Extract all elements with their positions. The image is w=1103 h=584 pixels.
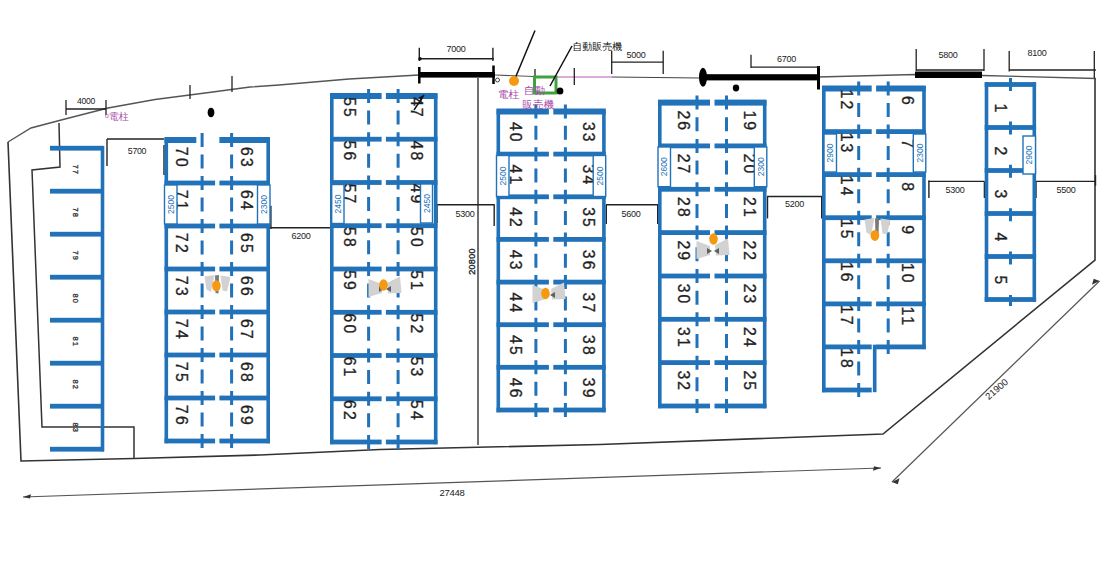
svg-text:10: 10 bbox=[899, 263, 916, 285]
svg-text:17: 17 bbox=[838, 305, 855, 327]
svg-text:23: 23 bbox=[741, 284, 758, 306]
svg-text:5800: 5800 bbox=[939, 50, 958, 60]
svg-text:11: 11 bbox=[899, 307, 916, 328]
svg-text:74: 74 bbox=[173, 319, 190, 341]
svg-text:26: 26 bbox=[675, 110, 692, 132]
svg-text:70: 70 bbox=[173, 147, 190, 169]
svg-text:2: 2 bbox=[992, 147, 1009, 158]
svg-text:5: 5 bbox=[992, 276, 1009, 287]
svg-text:45: 45 bbox=[507, 335, 524, 357]
svg-text:40: 40 bbox=[507, 122, 524, 144]
svg-text:65: 65 bbox=[238, 233, 255, 255]
svg-text:販売機: 販売機 bbox=[522, 98, 555, 110]
svg-text:83: 83 bbox=[71, 423, 80, 433]
svg-text:1: 1 bbox=[992, 104, 1009, 115]
svg-text:53: 53 bbox=[408, 357, 425, 379]
svg-text:4000: 4000 bbox=[77, 96, 95, 106]
svg-text:21: 21 bbox=[741, 197, 758, 219]
svg-text:81: 81 bbox=[71, 337, 80, 347]
svg-text:2300: 2300 bbox=[756, 157, 766, 176]
svg-text:6: 6 bbox=[899, 96, 916, 107]
svg-text:7000: 7000 bbox=[447, 44, 466, 54]
svg-text:2450: 2450 bbox=[333, 194, 343, 213]
svg-text:75: 75 bbox=[173, 362, 190, 384]
svg-text:60: 60 bbox=[341, 313, 358, 335]
svg-text:2900: 2900 bbox=[1024, 145, 1034, 164]
svg-text:31: 31 bbox=[675, 327, 692, 349]
svg-text:58: 58 bbox=[341, 227, 358, 249]
svg-text:62: 62 bbox=[341, 400, 358, 422]
svg-text:76: 76 bbox=[173, 405, 190, 427]
svg-text:5500: 5500 bbox=[1057, 185, 1076, 195]
svg-text:27: 27 bbox=[675, 154, 692, 176]
svg-text:47: 47 bbox=[408, 97, 425, 119]
svg-text:43: 43 bbox=[507, 250, 524, 272]
svg-text:5600: 5600 bbox=[622, 209, 641, 219]
svg-text:63: 63 bbox=[238, 147, 255, 169]
svg-text:77: 77 bbox=[71, 165, 80, 175]
svg-text:15: 15 bbox=[838, 219, 855, 241]
svg-text:68: 68 bbox=[238, 362, 255, 384]
svg-text:5300: 5300 bbox=[456, 209, 475, 219]
svg-text:35: 35 bbox=[580, 207, 597, 229]
svg-text:32: 32 bbox=[675, 370, 692, 392]
svg-text:8100: 8100 bbox=[1028, 48, 1047, 58]
svg-text:73: 73 bbox=[173, 276, 190, 298]
svg-text:4: 4 bbox=[992, 233, 1009, 244]
svg-text:8: 8 bbox=[899, 182, 916, 193]
svg-text:自動販売機: 自動販売機 bbox=[573, 41, 623, 52]
svg-text:37: 37 bbox=[580, 292, 597, 314]
svg-text:5700: 5700 bbox=[128, 146, 147, 156]
svg-text:51: 51 bbox=[408, 270, 425, 292]
svg-text:19: 19 bbox=[741, 110, 758, 132]
svg-text:78: 78 bbox=[71, 208, 80, 218]
svg-text:22: 22 bbox=[741, 240, 758, 262]
svg-text:56: 56 bbox=[341, 140, 358, 162]
svg-text:13: 13 bbox=[838, 133, 855, 155]
svg-text:12: 12 bbox=[838, 90, 855, 112]
svg-text:28: 28 bbox=[675, 197, 692, 219]
svg-text:2300: 2300 bbox=[915, 143, 925, 162]
svg-text:33: 33 bbox=[580, 122, 597, 144]
svg-text:59: 59 bbox=[341, 270, 358, 292]
svg-text:20800: 20800 bbox=[467, 248, 477, 275]
svg-text:27448: 27448 bbox=[440, 487, 465, 498]
svg-text:67: 67 bbox=[238, 319, 255, 341]
svg-text:50: 50 bbox=[408, 227, 425, 249]
svg-text:52: 52 bbox=[408, 313, 425, 335]
svg-text:42: 42 bbox=[507, 207, 524, 229]
svg-text:ᵒ電柱: ᵒ電柱 bbox=[105, 111, 129, 122]
svg-text:2500: 2500 bbox=[166, 195, 176, 214]
svg-text:5000: 5000 bbox=[627, 50, 646, 60]
svg-text:30: 30 bbox=[675, 284, 692, 306]
svg-text:44: 44 bbox=[507, 292, 524, 314]
svg-text:6700: 6700 bbox=[777, 54, 796, 64]
svg-text:48: 48 bbox=[408, 140, 425, 162]
svg-text:2450: 2450 bbox=[422, 194, 432, 213]
svg-text:61: 61 bbox=[341, 357, 358, 379]
svg-text:66: 66 bbox=[238, 276, 255, 298]
svg-text:24: 24 bbox=[741, 327, 758, 349]
svg-text:39: 39 bbox=[580, 378, 597, 400]
svg-text:9: 9 bbox=[899, 225, 916, 236]
svg-text:5200: 5200 bbox=[785, 199, 804, 209]
svg-text:電柱: 電柱 bbox=[498, 88, 520, 100]
svg-text:54: 54 bbox=[408, 400, 425, 422]
svg-text:82: 82 bbox=[71, 380, 80, 390]
svg-text:14: 14 bbox=[838, 176, 855, 198]
svg-text:25: 25 bbox=[741, 370, 758, 392]
svg-text:79: 79 bbox=[71, 251, 80, 261]
svg-text:2300: 2300 bbox=[259, 195, 269, 214]
svg-text:46: 46 bbox=[507, 378, 524, 400]
svg-text:6200: 6200 bbox=[292, 231, 311, 241]
svg-text:69: 69 bbox=[238, 405, 255, 427]
svg-text:2500: 2500 bbox=[595, 166, 605, 185]
svg-text:64: 64 bbox=[238, 190, 255, 212]
svg-text:29: 29 bbox=[675, 240, 692, 262]
svg-text:18: 18 bbox=[838, 348, 855, 370]
svg-text:55: 55 bbox=[341, 97, 358, 119]
svg-text:2600: 2600 bbox=[659, 157, 669, 176]
svg-text:38: 38 bbox=[580, 335, 597, 357]
svg-text:2900: 2900 bbox=[825, 143, 835, 162]
svg-text:自動: 自動 bbox=[524, 84, 545, 96]
svg-text:3: 3 bbox=[992, 190, 1009, 201]
svg-text:36: 36 bbox=[580, 250, 597, 272]
svg-text:2500: 2500 bbox=[498, 166, 508, 185]
svg-text:72: 72 bbox=[173, 233, 190, 255]
svg-text:80: 80 bbox=[71, 294, 80, 304]
svg-text:5300: 5300 bbox=[946, 185, 965, 195]
svg-text:16: 16 bbox=[838, 262, 855, 284]
